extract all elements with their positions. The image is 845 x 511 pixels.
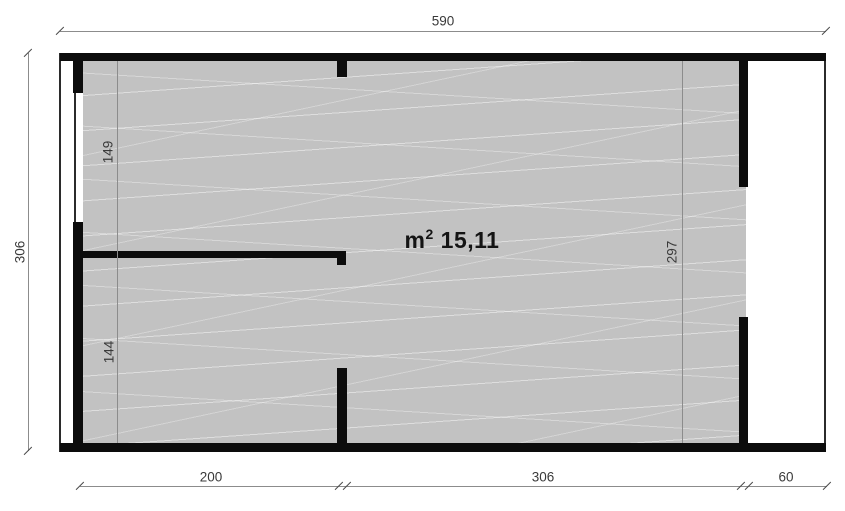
wall-right-upper — [739, 60, 748, 187]
area-unit: m — [405, 227, 426, 253]
wall-top — [60, 53, 826, 61]
dim-label-bottom-right: 60 — [778, 470, 793, 484]
dim-label-inner-right: 297 — [665, 241, 679, 264]
dim-label-inner-left-lower: 144 — [102, 341, 116, 364]
wall-stub-top — [337, 60, 347, 77]
dim-label-left: 306 — [13, 241, 27, 264]
dim-label-top: 590 — [432, 14, 455, 28]
wall-interior-horizontal — [78, 251, 345, 258]
wall-right-lower — [739, 317, 748, 443]
dim-label-bottom-left: 200 — [200, 470, 223, 484]
window-line-left — [74, 93, 76, 222]
dim-label-bottom-middle: 306 — [532, 470, 555, 484]
area-superscript: 2 — [425, 226, 433, 242]
dim-line-inner-left — [117, 61, 118, 443]
dim-line-bottom — [80, 486, 827, 487]
dim-line-left — [28, 53, 29, 451]
dim-label-inner-left-upper: 149 — [101, 141, 115, 164]
wall-interior-end-cap — [337, 251, 346, 265]
wall-bottom — [60, 443, 826, 452]
floor-plan-canvas: 590 306 149 144 297 200 306 60 m2 15,11 — [0, 0, 845, 511]
envelope-left-line — [59, 53, 61, 452]
dim-line-inner-right — [682, 61, 683, 443]
wall-left-upper — [73, 60, 83, 93]
wall-stub-bottom — [337, 368, 347, 443]
area-value: 15,11 — [441, 227, 500, 253]
envelope-right-line — [824, 53, 826, 452]
dim-line-top — [60, 31, 826, 32]
room-area-label: m2 15,11 — [405, 226, 500, 254]
